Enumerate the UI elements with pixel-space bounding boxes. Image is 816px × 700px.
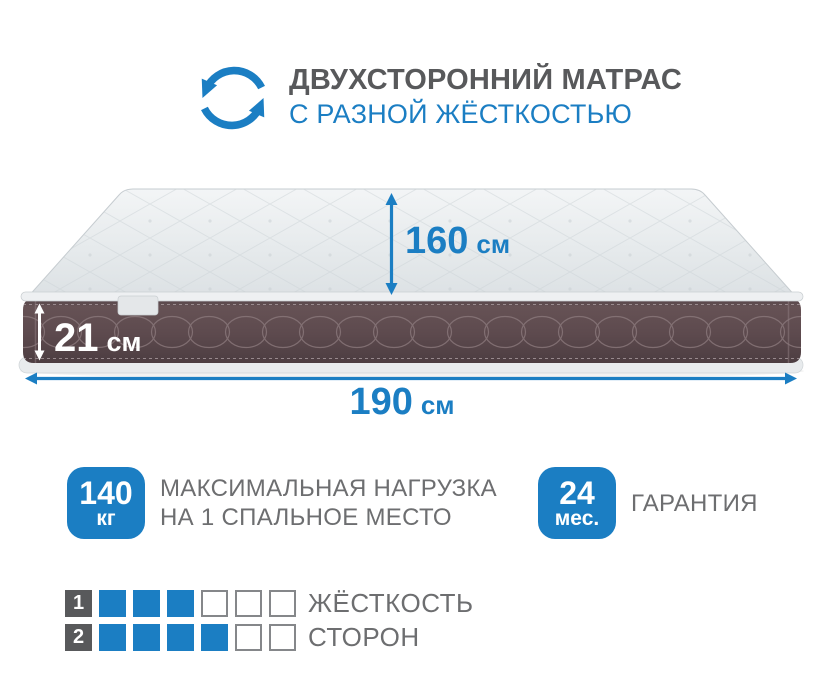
warranty-value: 24 [559,478,595,508]
firmness-scale-label: СТОРОН [308,623,420,651]
firmness-cell [99,590,126,617]
firmness-scale: 1 ЖЁСТКОСТЬ 2 СТОРОН [65,589,474,657]
firmness-cell [269,624,296,651]
infographic-canvas: ДВУХСТОРОННИЙ МАТРАС С РАЗНОЙ ЖЁСТКОСТЬЮ [0,0,816,700]
firmness-cell [167,590,194,617]
firmness-cell [201,624,228,651]
firmness-cell [99,624,126,651]
warranty-unit: мес. [555,508,599,529]
firmness-cell [235,590,262,617]
max-load-label-line2: НА 1 СПАЛЬНОЕ МЕСТО [160,503,497,532]
firmness-cell [167,624,194,651]
firmness-row-side1: 1 ЖЁСТКОСТЬ [65,589,474,617]
width-dimension-label: 190см [349,381,454,423]
firmness-cell [201,590,228,617]
feature-max-load: 140 кг МАКСИМАЛЬНАЯ НАГРУЗКА НА 1 СПАЛЬН… [67,467,497,539]
firmness-cell [235,624,262,651]
firmness-cells-side2 [99,624,296,651]
side-number-badge: 2 [65,624,92,651]
max-load-label-line1: МАКСИМАЛЬНАЯ НАГРУЗКА [160,474,497,503]
firmness-cell [269,590,296,617]
warranty-label: ГАРАНТИЯ [631,489,758,518]
side-number-badge: 1 [65,590,92,617]
firmness-cell [133,590,160,617]
mattress-label-tab [118,296,158,315]
max-load-badge: 140 кг [67,467,145,539]
max-load-unit: кг [96,508,115,529]
feature-warranty: 24 мес. ГАРАНТИЯ [538,467,758,539]
mattress-illustration: 160см 21см 190см [0,0,816,430]
firmness-cells-side1 [99,590,296,617]
firmness-cell [133,624,160,651]
max-load-label: МАКСИМАЛЬНАЯ НАГРУЗКА НА 1 СПАЛЬНОЕ МЕСТ… [160,474,497,532]
warranty-badge: 24 мес. [538,467,616,539]
warranty-label-line1: ГАРАНТИЯ [631,489,758,518]
firmness-scale-label: ЖЁСТКОСТЬ [308,589,474,617]
max-load-value: 140 [79,478,132,508]
firmness-row-side2: 2 СТОРОН [65,623,474,651]
